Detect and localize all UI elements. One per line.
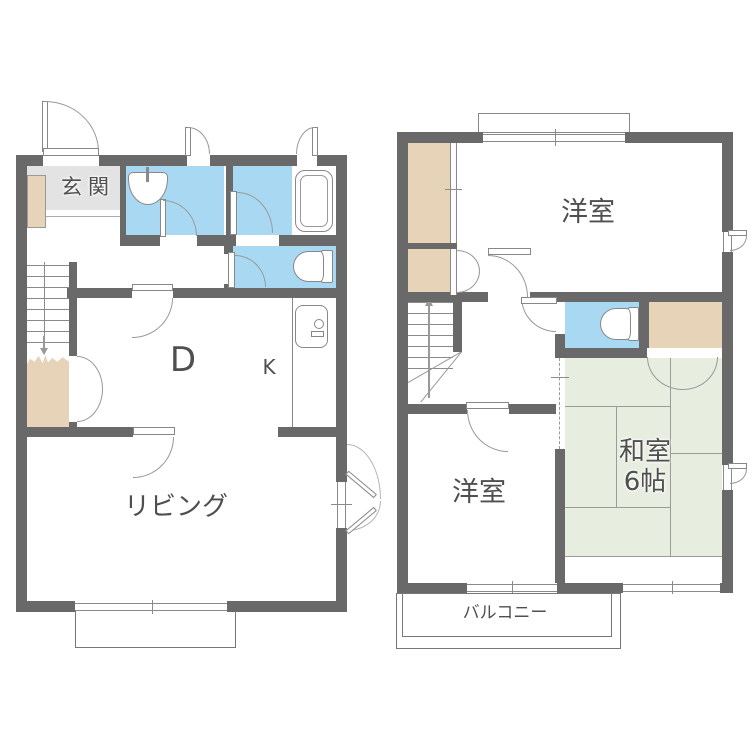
shoe-cabinet xyxy=(27,175,46,228)
closet-door-strip xyxy=(450,249,457,295)
wall-segment xyxy=(555,348,647,358)
door-leaf xyxy=(133,427,175,435)
door-swing-arc xyxy=(133,437,174,478)
door-swing-arc xyxy=(730,236,747,251)
balcony-label: バルコニー xyxy=(425,604,585,624)
dining-label: D xyxy=(164,342,202,380)
door-leaf xyxy=(488,248,531,255)
door-swing-arc xyxy=(77,356,103,389)
wall-segment xyxy=(99,155,187,166)
living-window xyxy=(75,603,227,611)
oshiire-closet xyxy=(649,302,722,348)
wall-segment xyxy=(336,528,347,612)
bedroom-bottom-label: 洋室 xyxy=(429,478,529,508)
wall-segment xyxy=(555,334,565,348)
wall-segment xyxy=(509,404,558,414)
wall-segment xyxy=(210,155,297,166)
wall-segment xyxy=(397,583,467,593)
line xyxy=(146,167,149,182)
line xyxy=(45,216,120,217)
line xyxy=(27,342,69,343)
line xyxy=(27,331,69,332)
terrace xyxy=(75,611,236,648)
fixture-shape xyxy=(314,319,324,329)
wall-opening xyxy=(69,356,77,422)
line xyxy=(565,507,670,508)
wall-segment xyxy=(639,292,649,348)
wall-segment xyxy=(227,601,347,612)
wall-segment xyxy=(720,583,733,593)
line xyxy=(408,346,453,347)
fixture-shape xyxy=(600,308,631,340)
wall-segment xyxy=(16,155,27,612)
line xyxy=(408,313,453,314)
closet-bottom xyxy=(408,249,450,292)
wall-segment xyxy=(453,302,462,352)
wall-segment xyxy=(397,132,483,143)
wall-segment xyxy=(197,235,236,246)
bedroom-top-label: 洋室 xyxy=(538,198,638,228)
wall-segment xyxy=(397,404,467,414)
bedroom-top-window xyxy=(483,134,625,142)
closet-top xyxy=(408,143,450,243)
door-swing-arc xyxy=(457,271,480,293)
tatami-size-label: 6帖 xyxy=(600,470,690,496)
door-leaf xyxy=(43,148,99,156)
line xyxy=(565,406,670,407)
entry-label: 玄関 xyxy=(48,175,128,199)
wall-segment xyxy=(16,427,133,437)
door-leaf xyxy=(521,297,557,304)
fixture-shape xyxy=(300,175,328,227)
closet-sliding-door xyxy=(450,143,457,243)
winder-tread xyxy=(420,351,462,402)
line xyxy=(555,129,556,146)
line xyxy=(408,357,453,358)
living-side-window xyxy=(337,482,346,528)
wall-segment xyxy=(278,427,347,437)
door-swing-arc xyxy=(188,127,210,154)
line xyxy=(27,265,69,266)
line xyxy=(445,189,462,190)
fixture-shape xyxy=(311,331,324,337)
wall-segment xyxy=(722,132,733,232)
wall-opening xyxy=(556,358,565,449)
line xyxy=(27,298,69,299)
door-leaf xyxy=(132,284,173,291)
line xyxy=(408,335,453,336)
line xyxy=(551,377,569,378)
wall-segment xyxy=(279,235,336,246)
line xyxy=(27,287,69,288)
shape xyxy=(559,358,560,449)
wall-segment xyxy=(722,252,733,465)
stairs-up-arrow xyxy=(428,306,430,398)
door-leaf xyxy=(230,191,237,235)
line xyxy=(565,556,722,557)
line xyxy=(27,309,69,310)
wall-segment xyxy=(397,292,488,302)
floor-plan-canvas: 玄関 D K リビング xyxy=(0,0,750,750)
upper-window-sill xyxy=(478,113,630,133)
wall-segment xyxy=(722,490,733,593)
door-swing-arc xyxy=(45,101,99,152)
wall-segment xyxy=(397,132,408,593)
door-swing-arc xyxy=(296,127,315,154)
wall-segment xyxy=(555,449,565,583)
door-swing-arc xyxy=(457,250,480,271)
wall-segment xyxy=(625,132,733,143)
wall-segment xyxy=(530,292,722,302)
under-stair-storage xyxy=(27,352,69,427)
door-swing-arc xyxy=(467,410,508,452)
line xyxy=(27,276,69,277)
door-swing-arc xyxy=(488,255,528,297)
line xyxy=(672,581,673,594)
wall-segment xyxy=(69,262,77,356)
tatami-room-label: 和室 xyxy=(600,440,690,466)
wall-segment xyxy=(557,583,623,593)
living-label: リビング xyxy=(116,494,236,522)
door-swing-arc xyxy=(77,389,103,422)
wall-segment xyxy=(16,601,75,612)
door-swing-arc xyxy=(730,469,747,484)
line xyxy=(27,320,69,321)
wall-segment xyxy=(120,235,160,246)
door-leaf xyxy=(466,402,509,409)
door-leaf xyxy=(228,252,235,288)
line xyxy=(408,324,453,325)
wall-opening xyxy=(555,302,565,334)
fixture-shape xyxy=(293,251,324,282)
wall-segment xyxy=(173,288,336,298)
stairs-down-arrowhead xyxy=(40,348,48,355)
door-swing-arc xyxy=(132,298,173,338)
kitchen-label: K xyxy=(258,356,280,378)
